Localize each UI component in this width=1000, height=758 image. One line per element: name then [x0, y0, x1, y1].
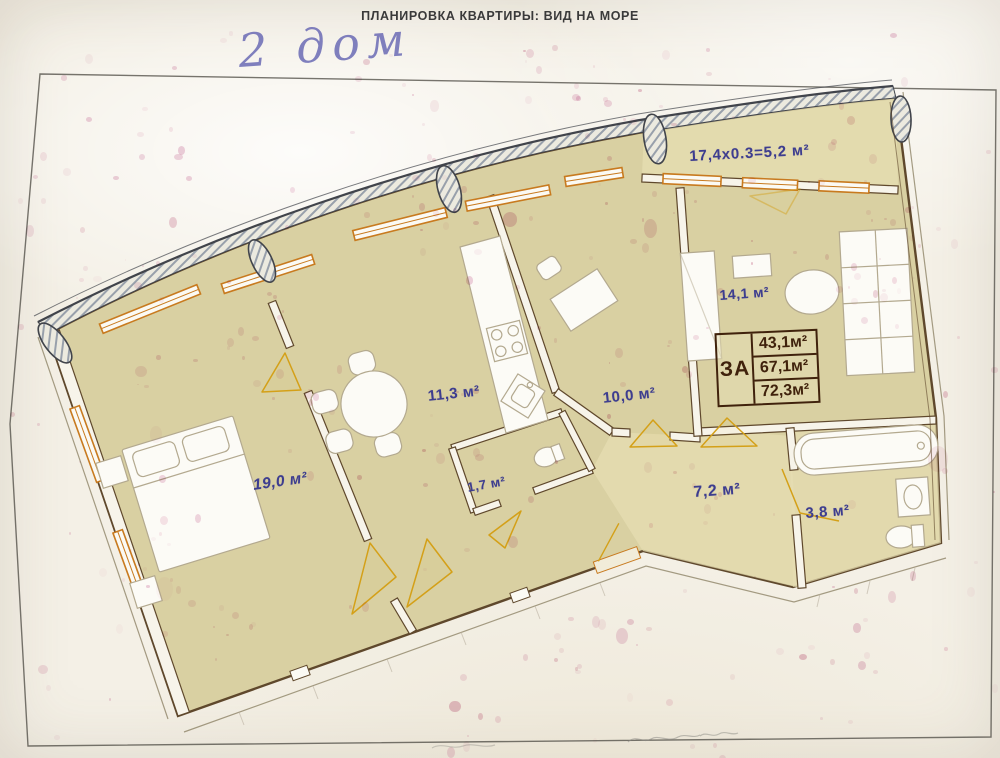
floor-plan-drawing	[0, 0, 1000, 758]
area-summary-table: ЗА 43,1м² 67,1м² 72,3м²	[714, 329, 820, 407]
scanned-floorplan-sheet: ПЛАНИРОВКА КВАРТИРЫ: ВИД НА МОРЕ 2 дом 1…	[0, 0, 1000, 758]
stove	[486, 320, 527, 361]
table-area-value: 43,1м²	[752, 331, 816, 356]
bathroom-sink	[896, 477, 931, 517]
table-values-column: 43,1м² 67,1м² 72,3м²	[750, 331, 818, 404]
table-row-header: ЗА	[717, 334, 754, 405]
apartment-outline	[48, 98, 941, 716]
room-area-label-hallway: 7,2 м²	[693, 481, 741, 502]
shelf	[732, 254, 771, 279]
wardrobe-grid	[839, 228, 914, 375]
table-area-value: 72,3м²	[754, 377, 818, 404]
room-area-label-bathroom: 3,8 м²	[805, 502, 850, 522]
page-title: ПЛАНИРОВКА КВАРТИРЫ: ВИД НА МОРЕ	[0, 9, 1000, 23]
table-area-value: 67,1м²	[753, 353, 817, 380]
